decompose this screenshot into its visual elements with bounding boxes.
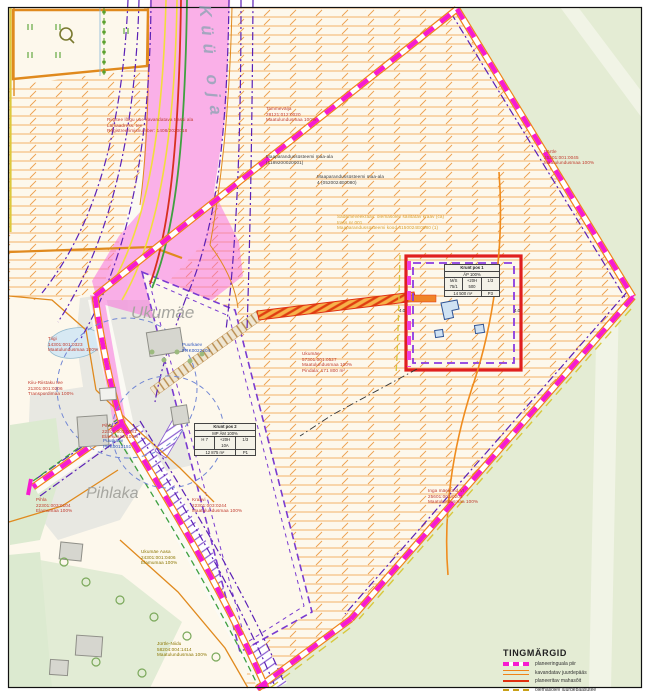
- drainage-area-label-1: Maaparandussüsteemi maa-ala(118920002000…: [266, 154, 333, 165]
- parcel-label-kraavi: Kraavi22301:003:0244Maatulundusmaa 100%: [192, 497, 242, 514]
- map-legend: TINGMÄRGID planeeringuala piir kavandata…: [503, 648, 649, 691]
- parcel-label-kiiu-riistaku-tee: Kiiu-Riistaku tee21301:001:0206Transpord…: [28, 380, 74, 397]
- legend-item-existing-road: olemasolev juurdepääsutee: [503, 687, 649, 691]
- parcel-label-partle: Pärtle25201:001:0045Maatulundusmaa 100%: [544, 149, 594, 166]
- existing-road-swatch-icon: [503, 689, 529, 691]
- drainage-area-label-2: Maaparandussüsteemi maa-ala4 (0520024E00…: [317, 174, 384, 185]
- farm-name-pihlaka: Pihlaka: [86, 485, 138, 503]
- road-restriction-note: Riigitee lõigu uue kavandatava trassi al…: [107, 117, 193, 134]
- parcel-label-ukumae-aasa: Ukumäe Aasa24301:001:0406Elamumaa 100%: [141, 549, 177, 566]
- well-label-2: PuurkaevPRK0013151: [103, 438, 131, 449]
- setback-dimension-left: 4.0: [399, 308, 405, 313]
- legend-item-boundary: planeeringuala piir: [503, 661, 649, 667]
- setback-dimension-right: 4.0: [514, 308, 520, 313]
- farm-name-ukumae: Ukumäe: [131, 303, 194, 323]
- legend-item-access: kavandatav juurdepääs: [503, 670, 649, 676]
- building-rights-table-pos1: Krunt pos 1 ÄP 100% M/S 75/1+20H 5001/3 …: [444, 264, 500, 297]
- exit-swatch-icon: [503, 680, 529, 682]
- well-label-1: PuurkaevPRK0022204: [182, 342, 210, 353]
- boundary-swatch-icon: [503, 662, 529, 666]
- parcel-label-ukumae: Ukumäe57301:001:0527Maatulundusmaa 100%P…: [302, 351, 352, 373]
- legend-item-exit: planeeritav mahasõit: [503, 678, 649, 684]
- parcel-label-jurtle-niidu: Jürtle-Niidu58204:004:1414Maatulundusmaa…: [157, 641, 207, 658]
- parcel-label-tammevalja: Tammevälja28121:012:0020Maatulundusmaa 1…: [266, 106, 316, 123]
- detail-plan-map: Küü oja Ukumäe Pihlaka Riigitee lõigu uu…: [0, 0, 650, 691]
- parcel-label-inga: Inga mäekünd VI25601:003:0202Maatulundus…: [428, 488, 478, 505]
- ditch-note-label: Sademeveekraav: olemasolev säilitatav kr…: [337, 214, 444, 231]
- legend-title: TINGMÄRGID: [503, 648, 649, 658]
- access-swatch-icon: [503, 670, 529, 675]
- building-rights-table-pos2: Krunt pos 2 MP ÄM 100% H 7+20H 10A1/3 12…: [194, 423, 256, 456]
- parcel-label-tiigi: Tiigi14301:001:0323Maatulundusmaa 100%: [48, 336, 98, 353]
- parcel-label-pihla-2: Pihla22301:003:0104Elamumaa 100%: [36, 497, 72, 514]
